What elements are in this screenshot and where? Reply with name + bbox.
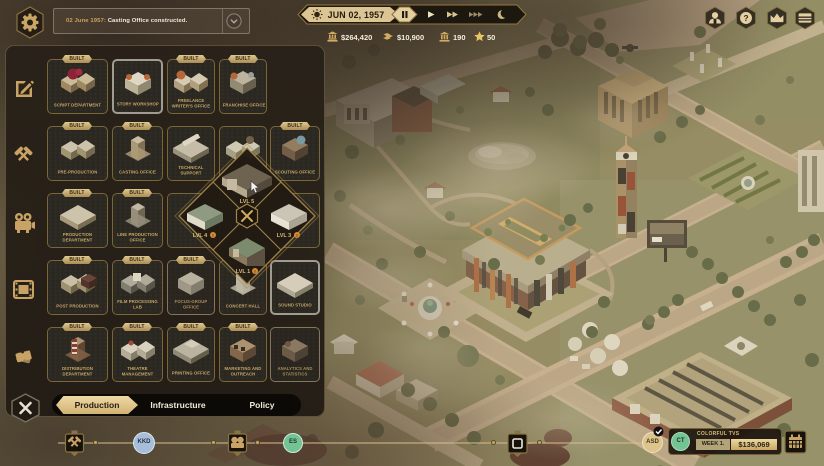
svg-text:LVL 1: LVL 1 — [236, 269, 250, 275]
svg-text:?: ? — [743, 14, 748, 23]
svg-text:LVL 4: LVL 4 — [193, 233, 208, 239]
svg-text:LVL 3: LVL 3 — [277, 233, 291, 239]
svg-text:JUN 02, 1957: JUN 02, 1957 — [328, 10, 385, 20]
